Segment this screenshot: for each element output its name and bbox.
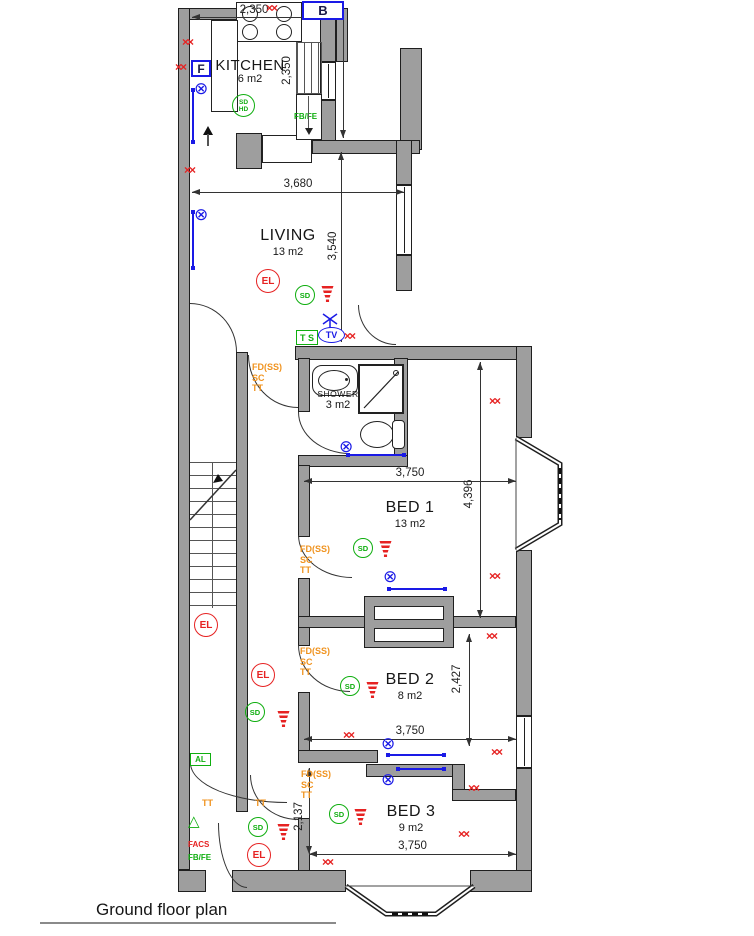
- toilet-cistern: [392, 420, 405, 449]
- facs-label: FACS: [188, 840, 209, 849]
- socket-icon: ××: [458, 828, 468, 840]
- sounder-icon: [277, 824, 290, 842]
- fridge-box: F: [191, 60, 211, 77]
- socket-icon: ××: [182, 36, 192, 48]
- bay-window-bed3: [340, 884, 476, 926]
- sounder-icon: [321, 286, 334, 304]
- door-living-arc: [190, 303, 237, 352]
- dim-kitchen-width: 2,350: [192, 4, 316, 16]
- smoke-detector-badge: SD: [245, 702, 265, 722]
- dimline-bed3-width: [309, 854, 516, 855]
- dimline-bed2-width: [304, 739, 516, 740]
- door-living-exit-arc: [358, 305, 396, 345]
- socket-icon: ××: [175, 61, 185, 73]
- wall-bottom-3: [470, 870, 532, 892]
- tt-label: TT: [255, 798, 266, 809]
- toilet-bowl: [360, 421, 394, 448]
- wall-side-return: [400, 48, 422, 150]
- basin-tap: [345, 378, 348, 381]
- stair-down-line: [308, 96, 309, 130]
- page-title: Ground floor plan: [96, 900, 227, 920]
- chimney-flue-bed1: [374, 606, 444, 620]
- fire-door-label: FD(SS): [252, 362, 282, 373]
- room-label-bed2: BED 2: [365, 671, 455, 689]
- room-area-shower: 3 m2: [309, 399, 367, 411]
- smoke-detector-badge: SD: [353, 538, 373, 558]
- room-label-bed3: BED 3: [366, 803, 456, 821]
- dimline-kitchen-width: [192, 17, 316, 18]
- wall-hatch-block: [236, 133, 262, 169]
- ceiling-light-icon: ⊗: [194, 206, 208, 223]
- smoke-detector-badge: SD: [295, 285, 315, 305]
- room-area-living: 13 m2: [238, 246, 338, 258]
- light-track-living: [192, 212, 194, 268]
- dim-living-width: 3,680: [192, 178, 404, 190]
- staircase-up-arrow: [190, 462, 236, 608]
- fire-door-label: FD(SS): [300, 646, 330, 657]
- socket-icon: ××: [266, 2, 276, 14]
- room-label-kitchen: KITCHEN: [200, 57, 300, 74]
- hob-burner: [276, 24, 292, 40]
- floor-plan: 2,350 2,350 3,680 3,540 3,750 4,396 3,75…: [0, 0, 754, 936]
- thermostat-box: T S: [296, 330, 318, 345]
- tt-label: TT: [301, 790, 331, 801]
- chimney-flue-bed2: [374, 628, 444, 642]
- door-lobby-inner-arc: [190, 763, 287, 803]
- emergency-light-badge: EL: [194, 613, 218, 637]
- heat-detector-label: HD: [239, 106, 248, 113]
- fire-door-spec: FD(SS) SC TT: [301, 769, 331, 801]
- title-underline: [40, 922, 336, 924]
- room-label-shower: SHOWER: [309, 389, 367, 399]
- fire-door-spec: FD(SS) SC TT: [300, 646, 330, 678]
- room-label-bed1: BED 1: [365, 499, 455, 517]
- fb-fe-label: FB/FE: [188, 853, 211, 862]
- light-track-bed3: [398, 768, 444, 770]
- smoke-detector-badge: SD: [340, 676, 360, 696]
- ceiling-light-icon: ⊗: [381, 771, 395, 788]
- emergency-light-badge: EL: [256, 269, 280, 293]
- dim-bed2-width: 3,750: [304, 725, 516, 737]
- smoke-heat-detector-badge: SD HD: [232, 94, 255, 117]
- fire-door-label: FD(SS): [301, 769, 331, 780]
- socket-icon: ××: [489, 395, 499, 407]
- wall-rooms-left-3: [298, 692, 310, 752]
- dim-bed1-height: 4,396: [463, 464, 475, 524]
- tt-label: TT: [202, 798, 213, 809]
- wall-right-3: [516, 768, 532, 872]
- socket-icon: ××: [491, 746, 501, 758]
- socket-icon: ××: [343, 729, 353, 741]
- fire-door-spec: FD(SS) SC TT: [252, 362, 282, 394]
- dim-bed3-width: 3,750: [309, 840, 516, 852]
- fb-fe-label: FB/FE: [294, 112, 317, 121]
- socket-icon: ××: [489, 570, 499, 582]
- sounder-icon: [277, 711, 290, 729]
- self-closer-label: SC: [300, 555, 330, 566]
- window-living: [396, 185, 412, 255]
- room-area-kitchen: 6 m2: [200, 73, 300, 85]
- socket-icon: ××: [322, 856, 332, 868]
- wall-right-2: [516, 550, 532, 716]
- wall-main-cross: [295, 346, 532, 360]
- boiler-box: B: [302, 1, 344, 20]
- wall-bed2-bed3-d: [452, 789, 516, 801]
- light-track-bed2: [388, 754, 444, 756]
- dimline-bed2-height: [469, 634, 470, 746]
- emergency-light-badge: EL: [247, 843, 271, 867]
- socket-icon: ××: [184, 164, 194, 176]
- ceiling-light-icon: ⊗: [383, 568, 397, 585]
- dimline-bed1-width: [304, 481, 516, 482]
- light-track-shower: [348, 454, 404, 456]
- hob-burner: [242, 24, 258, 40]
- socket-icon: ××: [468, 782, 478, 794]
- alarm-box: AL: [190, 753, 211, 766]
- dimline-kitchen-stairs: [343, 20, 344, 138]
- room-area-bed2: 8 m2: [365, 690, 455, 702]
- self-closer-label: SC: [300, 657, 330, 668]
- tv-antenna-icon: [319, 312, 339, 328]
- escape-sign-icon: △: [188, 814, 200, 829]
- smoke-detector-badge: SD: [248, 817, 268, 837]
- wall-bottom-1: [178, 870, 206, 892]
- ceiling-light-icon: ⊗: [194, 80, 208, 97]
- tt-label: TT: [300, 667, 330, 678]
- dimline-living-height: [341, 152, 342, 342]
- wall-shower-bottom: [298, 455, 408, 467]
- room-area-bed1: 13 m2: [365, 518, 455, 530]
- socket-icon: ××: [344, 330, 354, 342]
- smoke-detector-label: SD: [239, 99, 248, 106]
- light-track-bed1: [389, 588, 445, 590]
- smoke-detector-badge: SD: [329, 804, 349, 824]
- self-closer-label: SC: [301, 780, 331, 791]
- light-track-kitchen: [192, 90, 194, 142]
- wall-rooms-left-2: [298, 578, 310, 646]
- wall-hall-pier: [236, 352, 248, 812]
- sounder-icon: [379, 541, 392, 559]
- socket-icon: ××: [486, 630, 496, 642]
- fire-door-spec: FD(SS) SC TT: [300, 544, 330, 576]
- wall-bottom-2: [232, 870, 346, 892]
- window-kitchen: [320, 62, 336, 100]
- wall-bed2-bed3-a: [298, 750, 378, 763]
- emergency-light-badge: EL: [251, 663, 275, 687]
- self-closer-label: SC: [252, 373, 282, 384]
- tv-outlet: TV: [318, 327, 345, 343]
- entry-arrow-stem: [207, 134, 209, 146]
- door-entrance-arc: [218, 823, 247, 888]
- window-bed2: [516, 716, 532, 768]
- wall-bed1-bed2-right: [452, 616, 516, 628]
- dimline-bed1-height: [480, 362, 481, 618]
- ceiling-light-icon: ⊗: [381, 735, 395, 752]
- tt-label: TT: [300, 565, 330, 576]
- room-label-living: LIVING: [238, 227, 338, 245]
- wall-bed1-bed2-left: [298, 616, 366, 628]
- wall-left: [178, 8, 190, 870]
- fire-door-label: FD(SS): [300, 544, 330, 555]
- dim-bed1-width: 3,750: [304, 467, 516, 479]
- wall-right-1: [516, 346, 532, 438]
- tt-label: TT: [252, 383, 282, 394]
- room-area-bed3: 9 m2: [366, 822, 456, 834]
- stair-down-arrow-icon: [305, 128, 313, 135]
- wall-living-right-lower: [396, 255, 412, 291]
- bay-window-bed1: [514, 428, 576, 558]
- dimline-living-width: [192, 192, 404, 193]
